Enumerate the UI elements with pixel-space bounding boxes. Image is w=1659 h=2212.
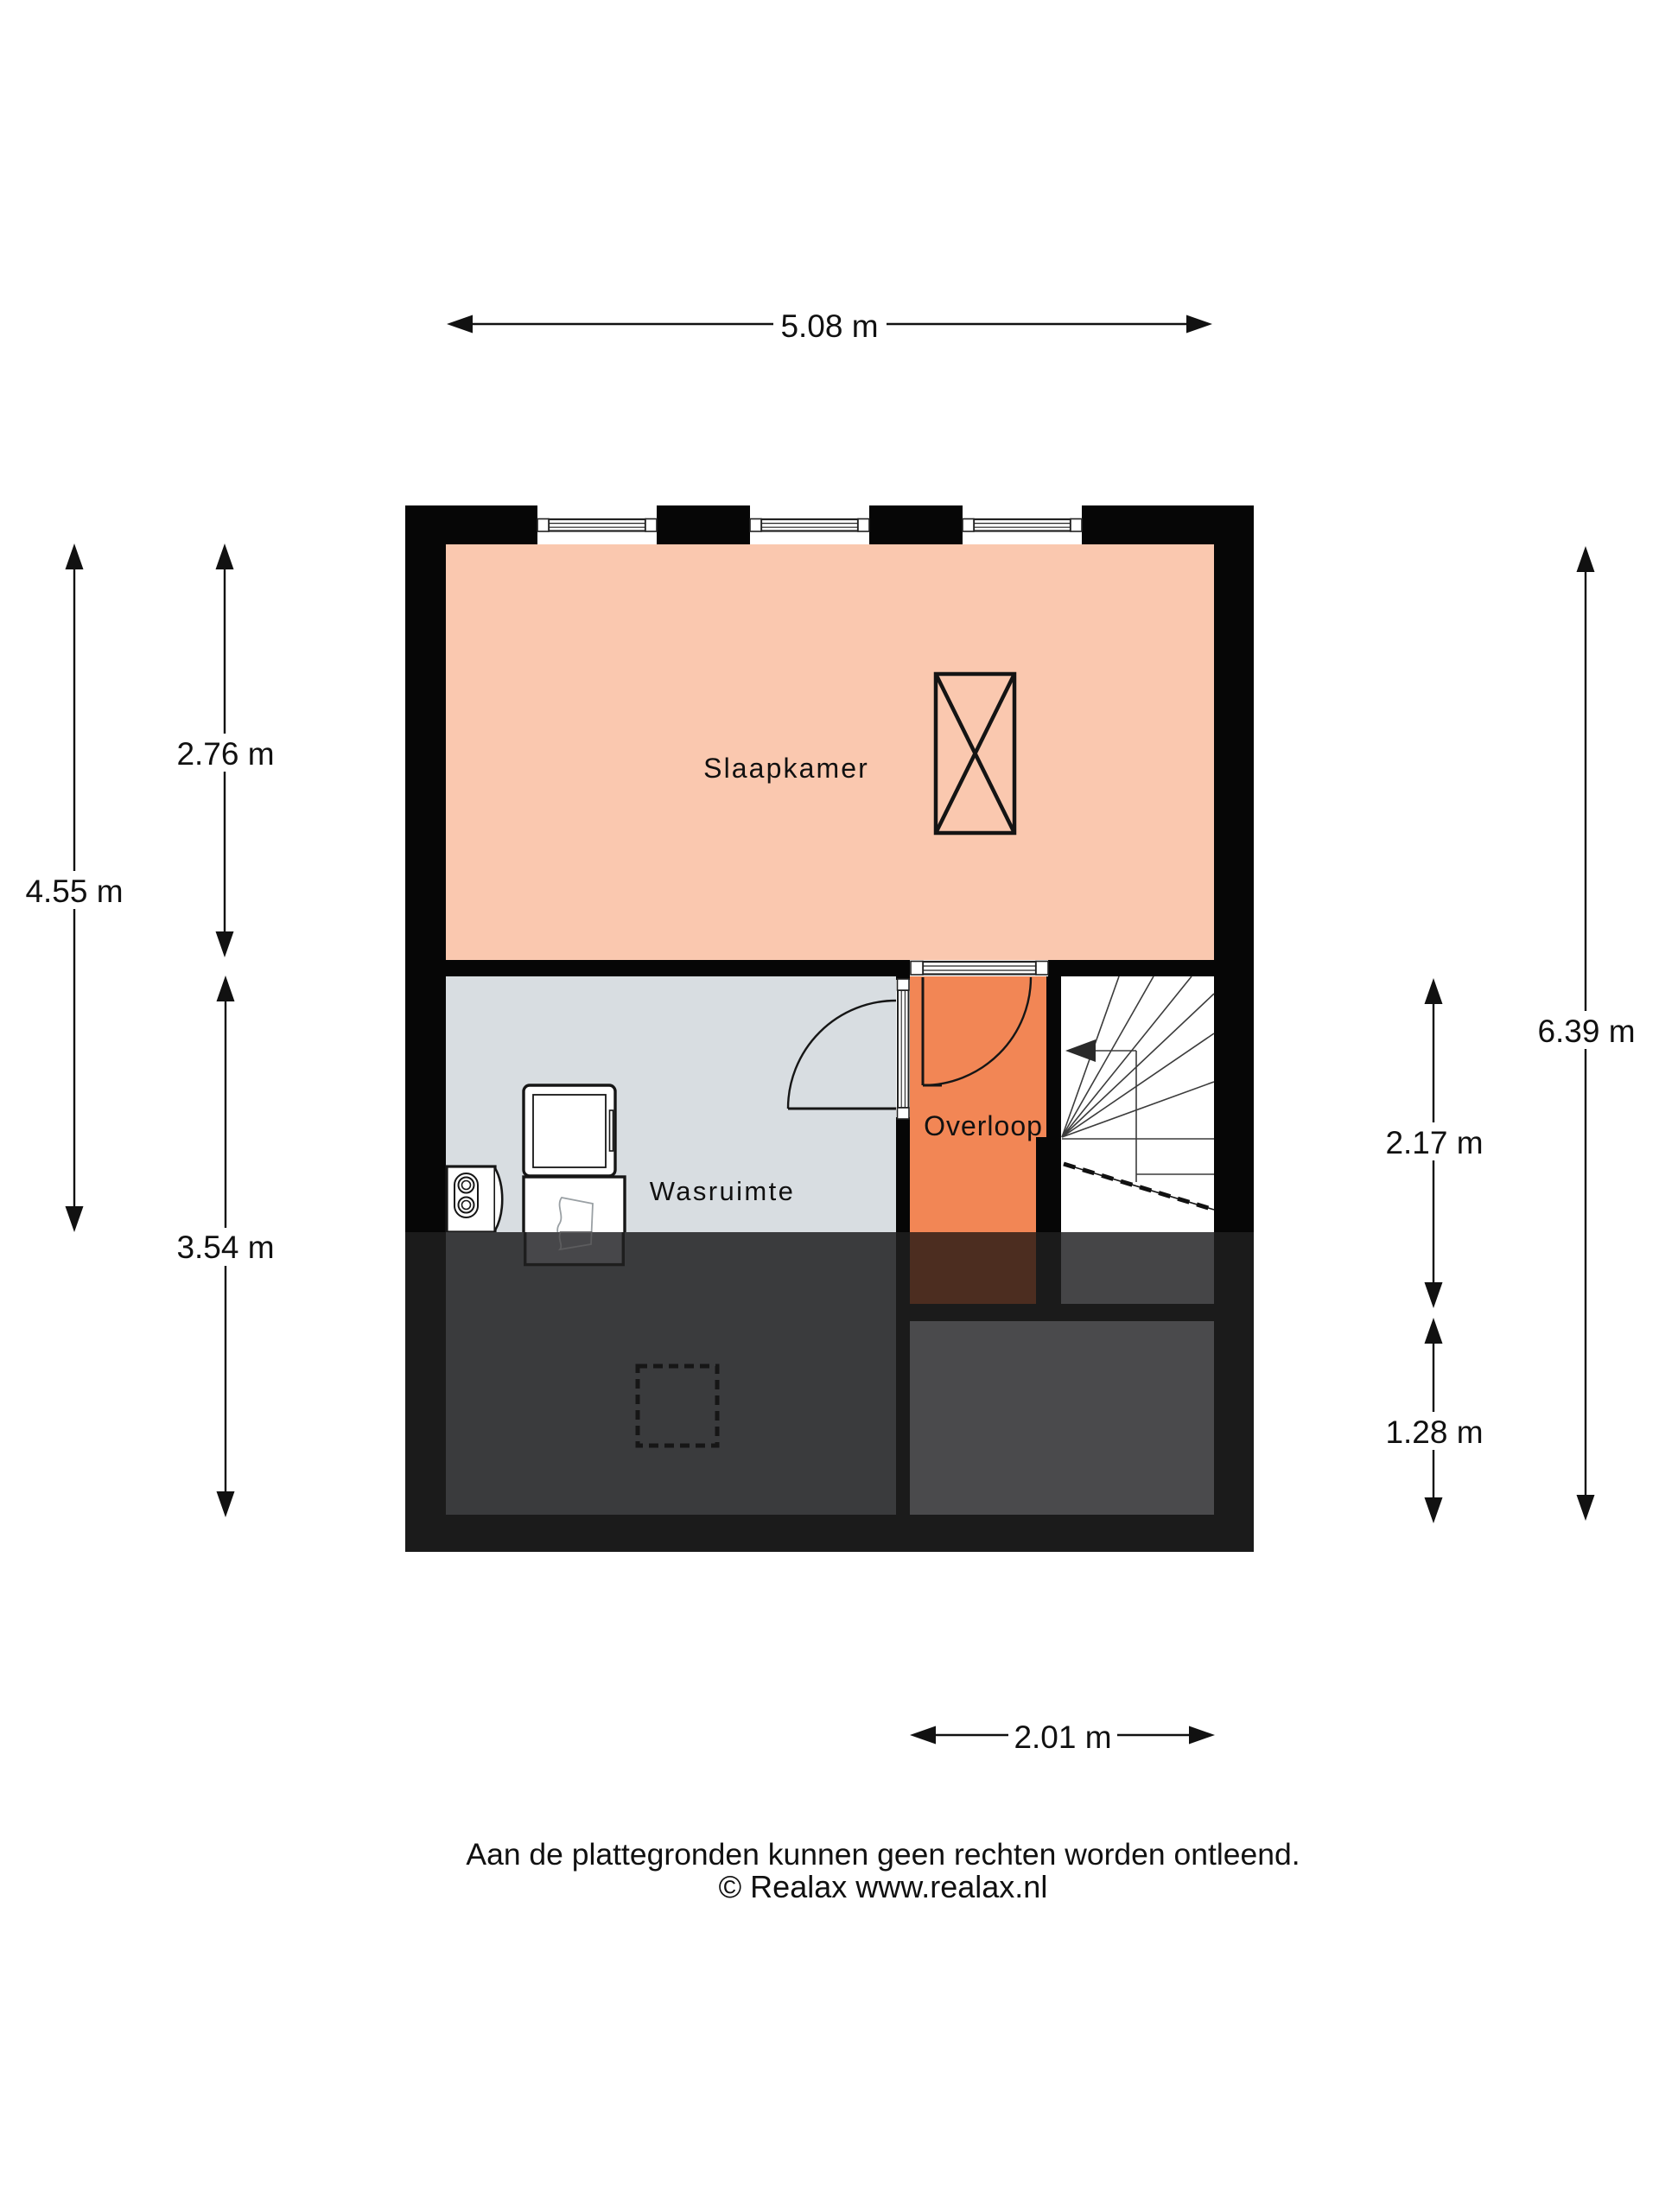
svg-text:Overloop: Overloop (924, 1110, 1043, 1141)
svg-text:2.01 m: 2.01 m (1014, 1719, 1111, 1755)
svg-text:5.08 m: 5.08 m (780, 308, 878, 344)
svg-text:© Realax www.realax.nl: © Realax www.realax.nl (719, 1869, 1048, 1904)
svg-text:6.39 m: 6.39 m (1537, 1014, 1635, 1049)
svg-text:2.17 m: 2.17 m (1385, 1125, 1483, 1160)
svg-text:Wasruimte: Wasruimte (650, 1176, 796, 1206)
svg-text:4.55 m: 4.55 m (25, 874, 123, 909)
svg-text:2.76 m: 2.76 m (176, 736, 274, 772)
svg-text:3.54 m: 3.54 m (176, 1230, 274, 1265)
svg-text:Slaapkamer: Slaapkamer (703, 753, 869, 784)
svg-text:1.28 m: 1.28 m (1385, 1414, 1483, 1450)
svg-text:Aan de plattegronden kunnen ge: Aan de plattegronden kunnen geen rechten… (466, 1837, 1300, 1872)
